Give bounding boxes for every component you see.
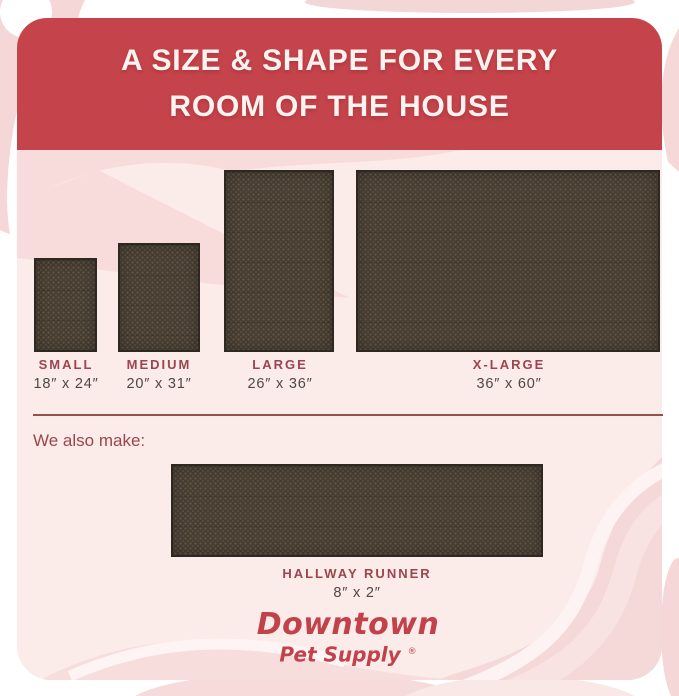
section-divider	[33, 414, 663, 416]
mat-small	[34, 258, 97, 352]
mat-large	[224, 170, 334, 352]
size-name: HALLWAY RUNNER	[277, 566, 437, 581]
mat-medium	[118, 243, 200, 352]
mat-xlarge	[356, 170, 660, 352]
size-name: X-LARGE	[429, 357, 589, 372]
infographic-canvas: A SIZE & SHAPE FOR EVERY ROOM OF THE HOU…	[0, 0, 679, 696]
brand-subtitle: Pet Supply ®	[257, 640, 440, 667]
mat-hallway-runner	[171, 464, 543, 557]
size-dims: 36″ x 60″	[429, 376, 589, 392]
header-title-line2: ROOM OF THE HOUSE	[169, 84, 509, 130]
size-label-hallway-runner: HALLWAY RUNNER 8″ x 2″	[277, 566, 437, 601]
size-label-xlarge: X-LARGE 36″ x 60″	[429, 357, 589, 392]
size-dims: 8″ x 2″	[277, 585, 437, 601]
size-name: LARGE	[200, 357, 360, 372]
header-banner: A SIZE & SHAPE FOR EVERY ROOM OF THE HOU…	[17, 18, 662, 150]
brand-name: Downtown	[257, 610, 440, 640]
brand-logo: Downtown Pet Supply ®	[257, 610, 440, 667]
brand-subtitle-text: Pet Supply	[279, 643, 400, 667]
size-label-large: LARGE 26″ x 36″	[200, 357, 360, 392]
also-make-note: We also make:	[33, 431, 145, 451]
size-dims: 26″ x 36″	[200, 376, 360, 392]
registered-trademark-symbol: ®	[408, 647, 417, 657]
header-title-line1: A SIZE & SHAPE FOR EVERY	[121, 38, 558, 84]
